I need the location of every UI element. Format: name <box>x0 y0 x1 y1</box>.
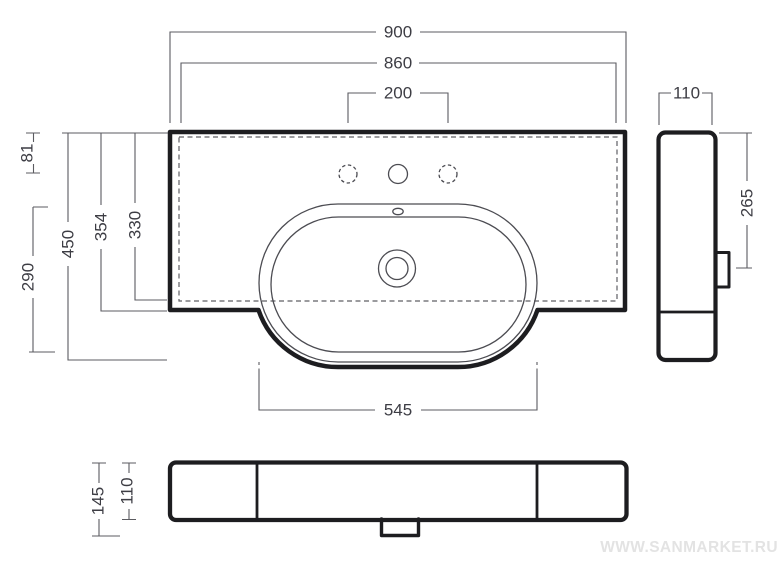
side-view: 110 265 <box>659 84 757 361</box>
front-outline <box>170 463 627 521</box>
dimension-overall-width: 900 <box>170 23 626 124</box>
dimension-front-apron-height: 110 <box>118 463 137 520</box>
dimension-label-900: 900 <box>384 23 412 42</box>
front-view: 145 110 <box>89 463 627 537</box>
dimension-top-to-tap-holes: 81 <box>18 133 41 173</box>
washbasin-dimension-drawing: 900 860 200 545 81 290 450 <box>0 0 784 561</box>
watermark: WWW.SANMARKET.RU <box>600 539 778 556</box>
dimension-overall-depth: 450 <box>59 133 168 360</box>
dimension-bowl-depth: 290 <box>19 207 56 352</box>
dimension-label-450: 450 <box>59 230 78 258</box>
dimension-label-81: 81 <box>18 144 37 163</box>
dimension-tap-hole-spacing: 200 <box>348 84 448 124</box>
top-view: 900 860 200 545 81 290 450 <box>18 23 627 420</box>
dimension-bowl-front-width: 545 <box>259 362 537 420</box>
dimension-label-354: 354 <box>92 213 111 241</box>
dimension-line-900 <box>170 32 626 123</box>
technical-drawing-page: 900 860 200 545 81 290 450 <box>0 0 784 561</box>
side-profile-outline <box>659 133 716 361</box>
dimension-depth-to-hidden-edge: 330 <box>126 133 168 300</box>
dimension-label-side-110: 110 <box>673 84 700 103</box>
dimension-label-330: 330 <box>126 211 145 239</box>
dimension-front-overall-height: 145 <box>89 463 121 536</box>
dimension-label-265: 265 <box>738 189 757 217</box>
dimension-label-290: 290 <box>19 263 38 291</box>
dimension-label-860: 860 <box>384 54 412 73</box>
dimension-label-front-110: 110 <box>118 477 137 504</box>
dimension-label-145: 145 <box>89 487 108 515</box>
dimension-side-thickness: 110 <box>659 84 712 126</box>
dimension-label-545: 545 <box>384 401 412 420</box>
dimension-top-to-outlet: 265 <box>719 133 757 268</box>
dimension-line-450 <box>68 133 167 360</box>
dimension-label-200: 200 <box>384 84 412 103</box>
